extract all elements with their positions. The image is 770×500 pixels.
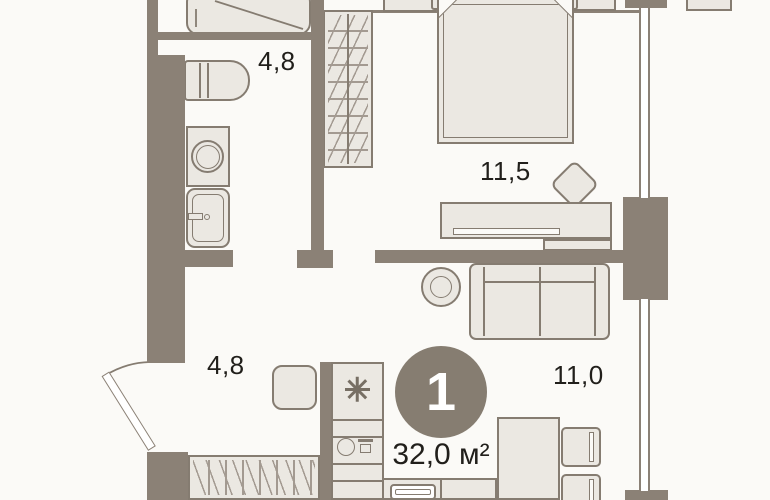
side-table <box>421 267 461 307</box>
window-bedroom <box>639 8 650 198</box>
chair-backrest-line <box>589 479 594 500</box>
chair-top <box>561 427 601 467</box>
oven <box>390 484 436 500</box>
oven-door-line <box>395 489 431 495</box>
window-living <box>639 299 650 491</box>
room-label-hallway: 4,8 <box>207 350 245 381</box>
wall-divider-footing <box>297 250 333 268</box>
counter-divider <box>333 436 382 438</box>
wardrobe-divider <box>347 14 349 164</box>
toilet <box>186 188 230 248</box>
bed <box>437 0 574 144</box>
dresser-tv-stand <box>440 202 612 239</box>
wall-window-stub-top <box>625 0 667 8</box>
washing-machine-line <box>199 63 201 98</box>
sofa-armrest-line-right <box>594 267 596 336</box>
wall-bedroom-living <box>375 250 630 263</box>
wall-window-stub-bottom <box>625 490 668 500</box>
chair-bottom <box>561 474 601 500</box>
nightstand-right <box>574 0 616 11</box>
wall-left <box>147 55 185 363</box>
room-label-living: 11,0 <box>553 360 604 391</box>
total-area-label: 32,0 м² <box>392 438 489 472</box>
counter-divider <box>333 480 382 482</box>
bed-mattress-line <box>443 4 568 138</box>
washing-machine <box>184 60 250 101</box>
toilet-flush-handle-icon <box>188 213 203 220</box>
sofa-cushion-divider <box>539 267 541 336</box>
bathtub <box>186 0 311 35</box>
wall-bathroom-top <box>147 32 313 40</box>
wall-entry-bottom <box>147 452 188 500</box>
kitchen-pot-icon <box>360 444 371 453</box>
sofa-armrest-line-left <box>483 267 485 336</box>
toilet-knob-icon <box>204 214 210 220</box>
kitchen-tap-icon <box>358 439 373 442</box>
wardrobe <box>323 10 373 168</box>
kitchen-sink-icon <box>337 438 355 456</box>
sofa-backrest-line <box>485 281 594 283</box>
wall-kitchen <box>320 362 331 500</box>
hall-closet <box>188 455 320 500</box>
door-swing-arc <box>106 362 150 375</box>
nightstand-left <box>383 0 436 12</box>
dining-table <box>497 417 560 500</box>
hob-icon <box>345 377 370 402</box>
counter-divider <box>333 463 382 465</box>
vanity-cabinet <box>186 126 230 187</box>
wall-window-pillar <box>623 197 668 300</box>
washing-machine-line <box>207 63 209 98</box>
chair-backrest-line <box>589 432 594 462</box>
side-table-ring-icon <box>430 276 452 298</box>
hall-stool <box>272 365 317 410</box>
sofa <box>469 263 610 340</box>
counter-divider <box>333 419 382 421</box>
cropped-neighbor-furniture <box>686 0 732 11</box>
room-count-badge: 1 <box>395 346 487 438</box>
sink-bowl-inner-icon <box>196 145 220 169</box>
wall-bathroom-bottom <box>147 250 233 267</box>
room-label-bathroom: 4,8 <box>258 46 296 77</box>
entry-door-leaf <box>102 371 156 450</box>
closet-hangers-pattern <box>193 460 315 495</box>
dresser-drawer-slot <box>453 228 560 235</box>
wall-bathroom-right <box>311 0 324 252</box>
room-label-bedroom: 11,5 <box>480 156 531 187</box>
room-count-number: 1 <box>426 361 456 423</box>
floor-plan: 4,8 11,5 4,8 11,0 1 32,0 м² <box>0 0 770 500</box>
counter-divider <box>440 480 442 498</box>
